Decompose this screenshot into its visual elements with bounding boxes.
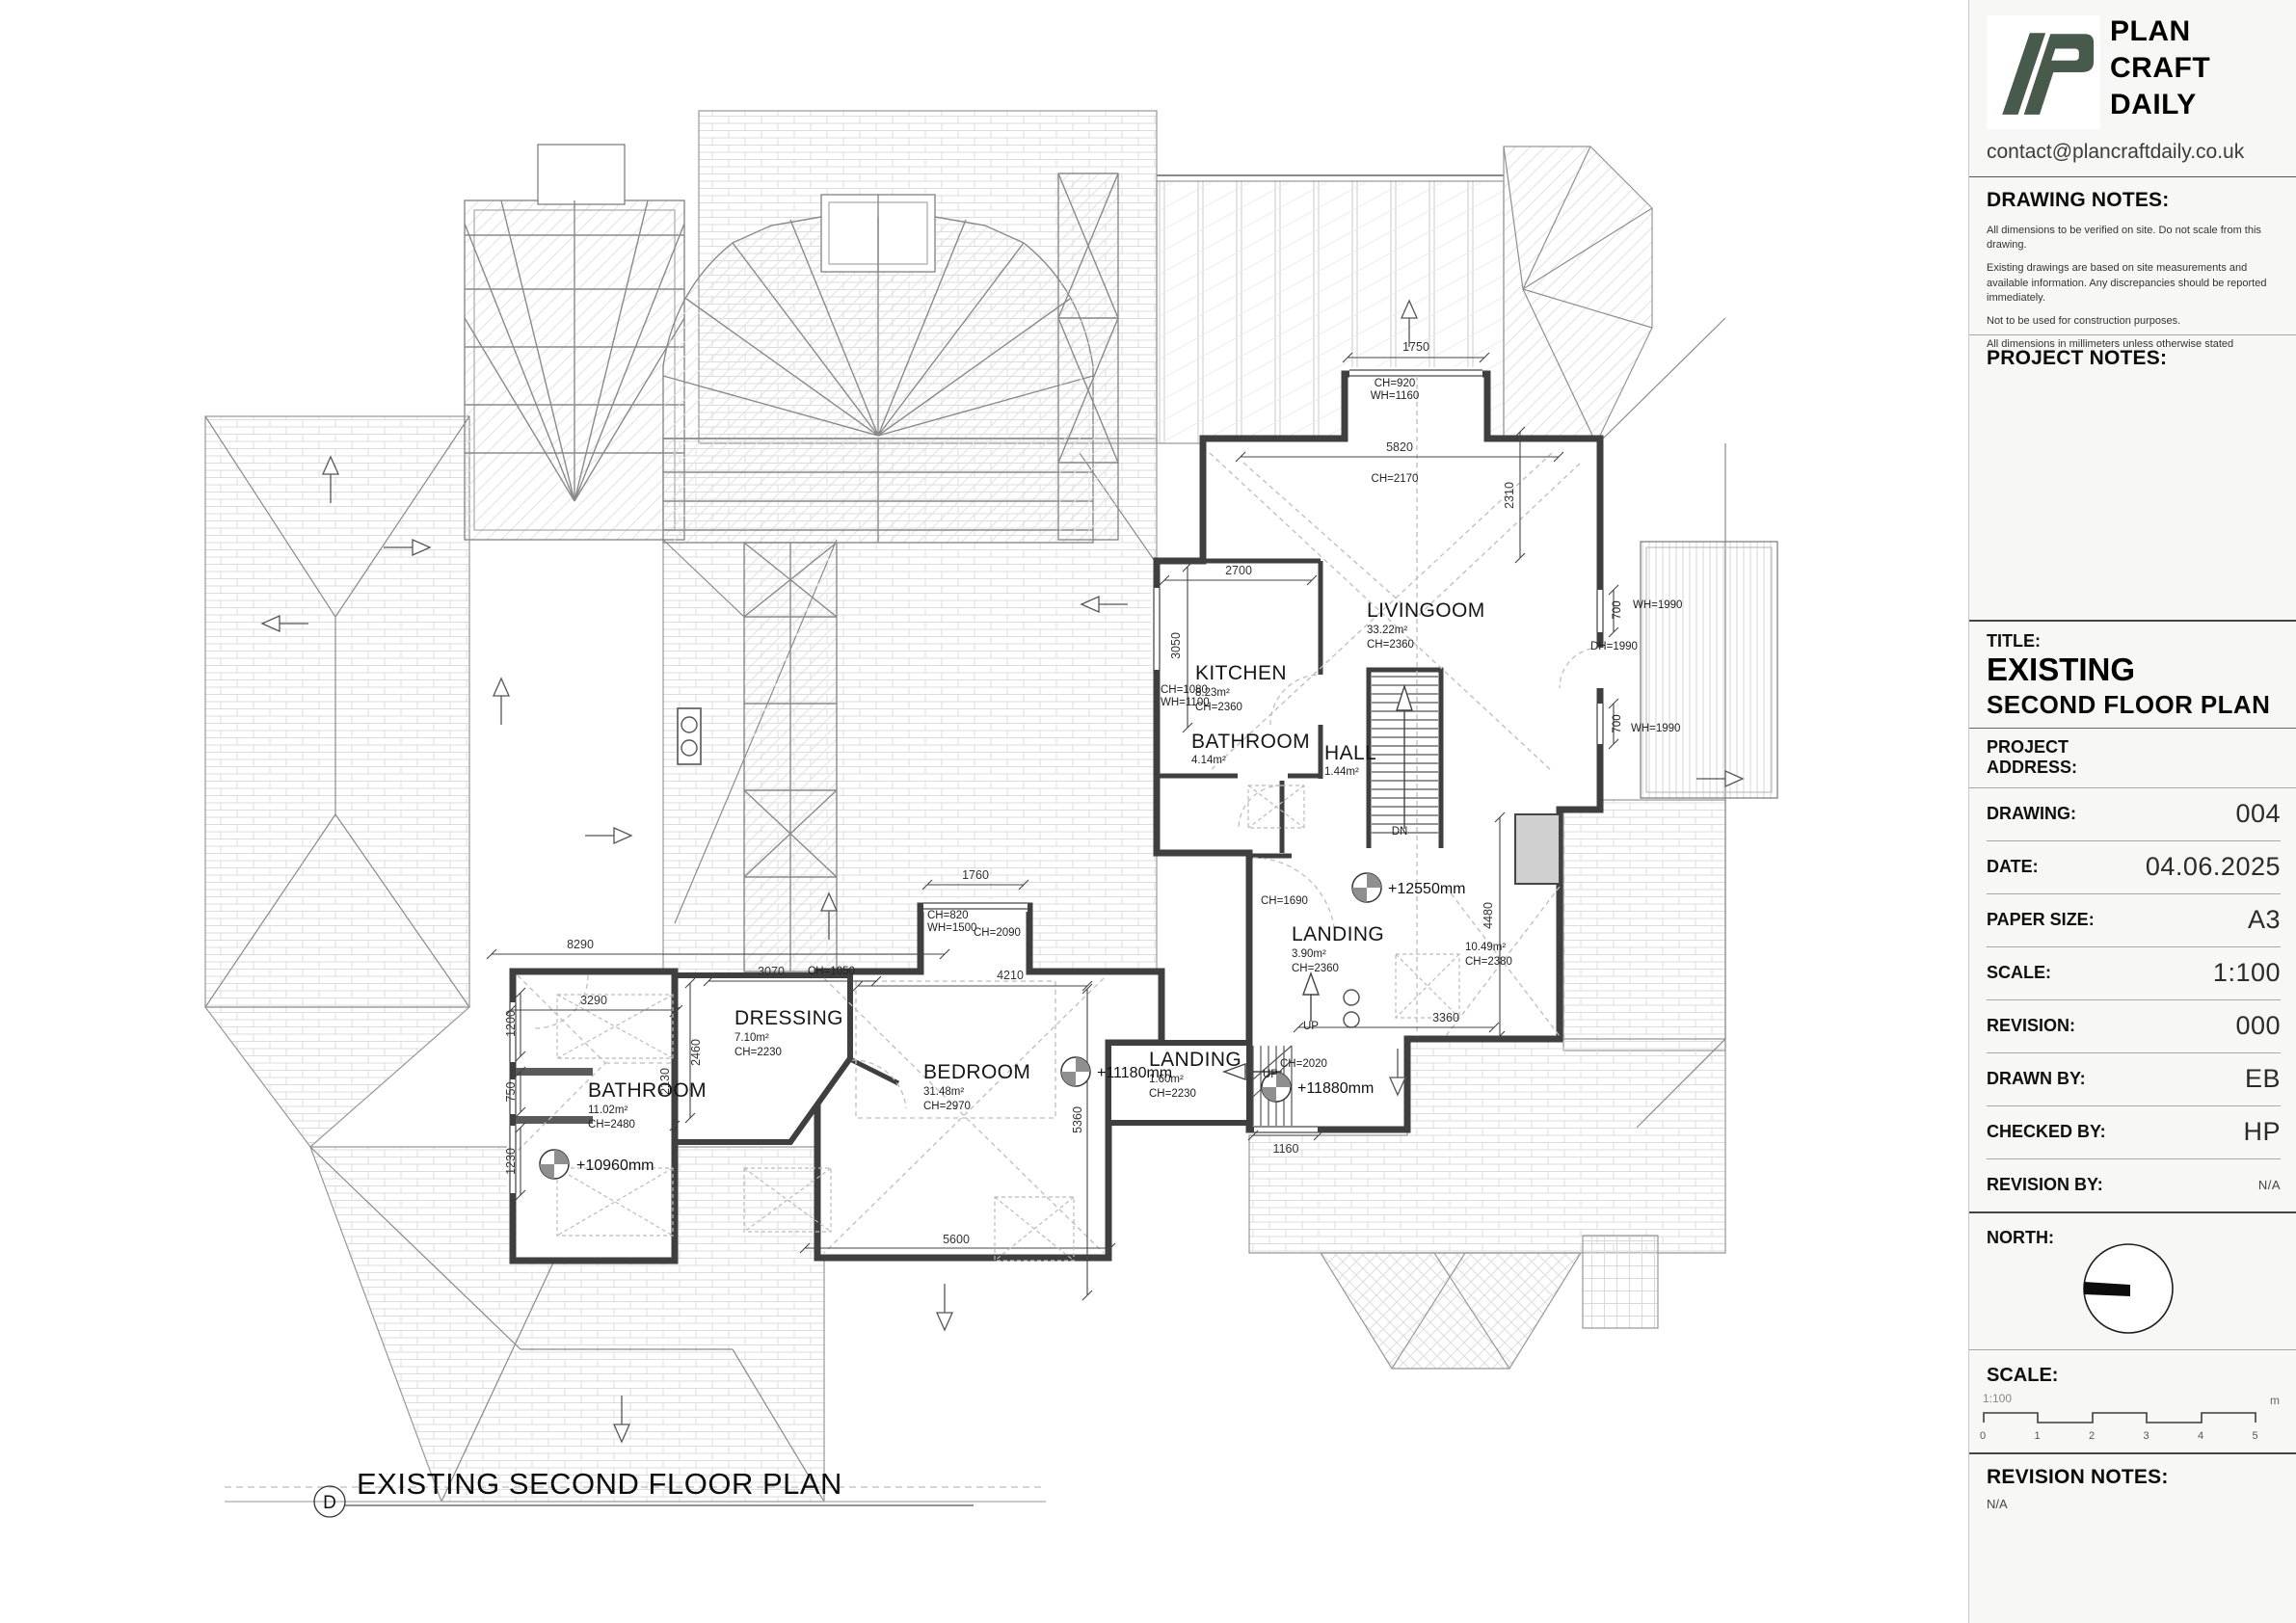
field-row-checked-by-: CHECKED BY:HP [1987, 1105, 2281, 1159]
drawing-notes-list: All dimensions to be verified on site. D… [1987, 224, 2276, 360]
plan-text: DN [1392, 826, 1408, 838]
field-label: REVISION: [1987, 1016, 2075, 1036]
plan-text: CH=2480 [588, 1119, 635, 1131]
sheet-title-line2: SECOND FLOOR PLAN [1987, 690, 2270, 720]
plan-text: 700 [1612, 714, 1623, 732]
plan-text: 1760 [962, 868, 989, 882]
field-label: SCALE: [1987, 963, 2051, 983]
plan-text: CH=2230 [1149, 1088, 1196, 1100]
plan-text: 2700 [1225, 564, 1252, 577]
plan-text: CH=2360 [1292, 963, 1339, 974]
slope-arrow [585, 828, 631, 843]
title-label: TITLE: [1987, 631, 2041, 652]
scale-tick-numbers: 012345 [1983, 1430, 2272, 1444]
plan-text: WH=1990 [1633, 599, 1682, 611]
plan-text: 3050 [1169, 632, 1183, 659]
plan-text: CH=2360 [1367, 639, 1414, 651]
plan-text: 2460 [689, 1039, 703, 1066]
scale-tick: 1 [2035, 1430, 2041, 1442]
sheet-title-line1: EXISTING [1987, 652, 2135, 688]
field-value: EB [2245, 1064, 2281, 1094]
plan-text: 1230 [504, 1148, 518, 1175]
scale-tick: 0 [1980, 1430, 1986, 1442]
company-logo [1987, 15, 2100, 129]
field-value: HP [2243, 1117, 2281, 1147]
plan-text: LANDING [1292, 923, 1384, 945]
plan-text: 8290 [567, 938, 594, 951]
plan-text: DH=1990 [1590, 641, 1638, 652]
plan-text: 2130 [658, 1068, 672, 1095]
plan-text: 4480 [1482, 902, 1495, 929]
plan-text: 3.90m² [1292, 948, 1326, 960]
scale-tick: 5 [2253, 1430, 2258, 1442]
north-compass [2075, 1239, 2181, 1345]
scale-tick: 2 [2089, 1430, 2095, 1442]
plan-text: LIVINGOOM [1367, 599, 1485, 622]
plan-text: 1200 [504, 1010, 518, 1037]
plan-text: 3360 [1432, 1011, 1459, 1024]
field-label: PAPER SIZE: [1987, 910, 2095, 930]
plan-text: DRESSING [734, 1007, 843, 1029]
plan-text: BEDROOM [923, 1061, 1030, 1083]
plan-text: BATHROOM [588, 1079, 707, 1102]
plan-text: HALL [1324, 742, 1376, 764]
level-marker [540, 1150, 569, 1179]
plan-text: 5820 [1386, 440, 1413, 454]
plan-text: CH=920 [1375, 378, 1416, 389]
plan-text: WH=1100 [1161, 697, 1210, 708]
plan-text: WH=1160 [1371, 390, 1420, 402]
level-marker [1061, 1057, 1090, 1086]
plan-text: +12550mm [1388, 881, 1466, 897]
plan-text: 7.10m² [734, 1032, 769, 1044]
title-block-panel: PLAN CRAFT DAILY contact@plancraftdaily.… [1968, 0, 2296, 1623]
plan-text: CH=820 [927, 910, 969, 921]
brand-name: PLAN CRAFT DAILY [2110, 13, 2210, 123]
plan-text: 5360 [1071, 1106, 1084, 1133]
scale-tick: 3 [2144, 1430, 2149, 1442]
plan-text: +11180mm [1097, 1065, 1172, 1081]
plan-text: 700 [1612, 600, 1623, 619]
plan-text: 3290 [580, 994, 607, 1007]
project-address-label-1: PROJECT [1987, 737, 2069, 758]
plan-text: CH=2090 [974, 927, 1021, 939]
drawing-notes-heading: DRAWING NOTES: [1987, 189, 2169, 212]
field-row-date-: DATE:04.06.2025 [1987, 840, 2281, 894]
plan-text: CH=1080 [1161, 684, 1208, 696]
level-marker [1352, 873, 1381, 902]
field-row-drawn-by-: DRAWN BY:EB [1987, 1052, 2281, 1106]
plan-text: CH=2380 [1465, 956, 1512, 968]
plan-text: 4210 [997, 969, 1024, 982]
field-value: N/A [2258, 1178, 2281, 1192]
north-label: NORTH: [1987, 1228, 2054, 1248]
field-value: 004 [2235, 799, 2281, 829]
scale-unit: m [2270, 1394, 2280, 1407]
plan-text: 4.14m² [1191, 755, 1226, 766]
drawing-sheet: KITCHEN8.23m²CH=2360LIVINGOOM33.22m²CH=2… [0, 0, 2296, 1623]
field-label: DRAWING: [1987, 804, 2076, 824]
field-row-drawing-: DRAWING:004 [1987, 787, 2281, 841]
plan-text: +10960mm [576, 1157, 654, 1174]
field-label: CHECKED BY: [1987, 1122, 2106, 1142]
plan-text: 10.49m² [1465, 942, 1506, 953]
plan-text: KITCHEN [1195, 662, 1287, 684]
revision-notes-value: N/A [1987, 1497, 2008, 1511]
project-notes-heading: PROJECT NOTES: [1987, 347, 2167, 370]
brand-line-3: DAILY [2110, 87, 2210, 123]
floor-plan-canvas: KITCHEN8.23m²CH=2360LIVINGOOM33.22m²CH=2… [0, 0, 1968, 1623]
field-row-paper-size-: PAPER SIZE:A3 [1987, 893, 2281, 947]
drawing-note: Not to be used for construction purposes… [1987, 314, 2276, 329]
scale-bar [1983, 1407, 2272, 1428]
plan-title: D EXISTING SECOND FLOOR PLAN [314, 1467, 974, 1517]
floor-plan-svg: KITCHEN8.23m²CH=2360LIVINGOOM33.22m²CH=2… [0, 0, 1968, 1623]
plan-text: 750 [504, 1082, 518, 1103]
brand-line-2: CRAFT [2110, 50, 2210, 87]
plan-text: 2310 [1503, 482, 1516, 509]
plan-text: +11880mm [1297, 1080, 1374, 1097]
field-row-revision-by-: REVISION BY:N/A [1987, 1158, 2281, 1212]
plan-text: WH=1500 [927, 922, 976, 934]
plan-text: UP [1263, 1069, 1278, 1080]
plan-text: 31.48m² [923, 1086, 964, 1098]
plan-text: CH=1690 [1261, 895, 1308, 907]
brand-line-1: PLAN [2110, 13, 2210, 50]
field-label: REVISION BY: [1987, 1175, 2103, 1195]
drawing-note: Existing drawings are based on site meas… [1987, 261, 2276, 306]
slope-arrow [937, 1284, 952, 1330]
plan-title-bubble: D [323, 1493, 336, 1513]
plan-text: 1160 [1273, 1142, 1299, 1156]
field-label: DATE: [1987, 857, 2039, 877]
drawing-note: All dimensions to be verified on site. D… [1987, 224, 2276, 253]
plan-text: 5600 [943, 1233, 970, 1246]
field-value: 1:100 [2213, 958, 2281, 988]
scale-tick: 4 [2198, 1430, 2203, 1442]
revision-notes-heading: REVISION NOTES: [1987, 1466, 2169, 1489]
plan-text: WH=1990 [1631, 723, 1680, 734]
field-value: 000 [2235, 1011, 2281, 1041]
field-value: A3 [2248, 905, 2281, 935]
plan-text: BATHROOM [1191, 731, 1310, 753]
plan-text: CH=1050 [808, 966, 855, 977]
plan-text: 1.44m² [1324, 766, 1359, 778]
field-value: 04.06.2025 [2146, 852, 2281, 882]
scale-label: SCALE: [1987, 1365, 2058, 1387]
field-row-scale-: SCALE:1:100 [1987, 946, 2281, 1000]
plan-text: 11.02m² [588, 1104, 628, 1116]
plan-text: 1750 [1402, 340, 1429, 354]
project-address-label-2: ADDRESS: [1987, 758, 2077, 778]
plan-text: CH=2970 [923, 1101, 971, 1112]
plan-text: CH=2170 [1372, 473, 1419, 485]
plan-title-text: EXISTING SECOND FLOOR PLAN [357, 1467, 842, 1501]
field-label: DRAWN BY: [1987, 1069, 2086, 1089]
contact-email: contact@plancraftdaily.co.uk [1987, 141, 2244, 164]
plan-text: CH=2020 [1280, 1058, 1327, 1070]
field-row-revision-: REVISION:000 [1987, 999, 2281, 1053]
slope-arrow [494, 678, 509, 725]
plan-text: UP [1303, 1021, 1319, 1032]
plan-text: 3070 [758, 965, 785, 978]
plan-text: CH=2230 [734, 1047, 782, 1058]
plan-text: 33.22m² [1367, 625, 1407, 636]
scale-ratio: 1:100 [1983, 1392, 2012, 1405]
